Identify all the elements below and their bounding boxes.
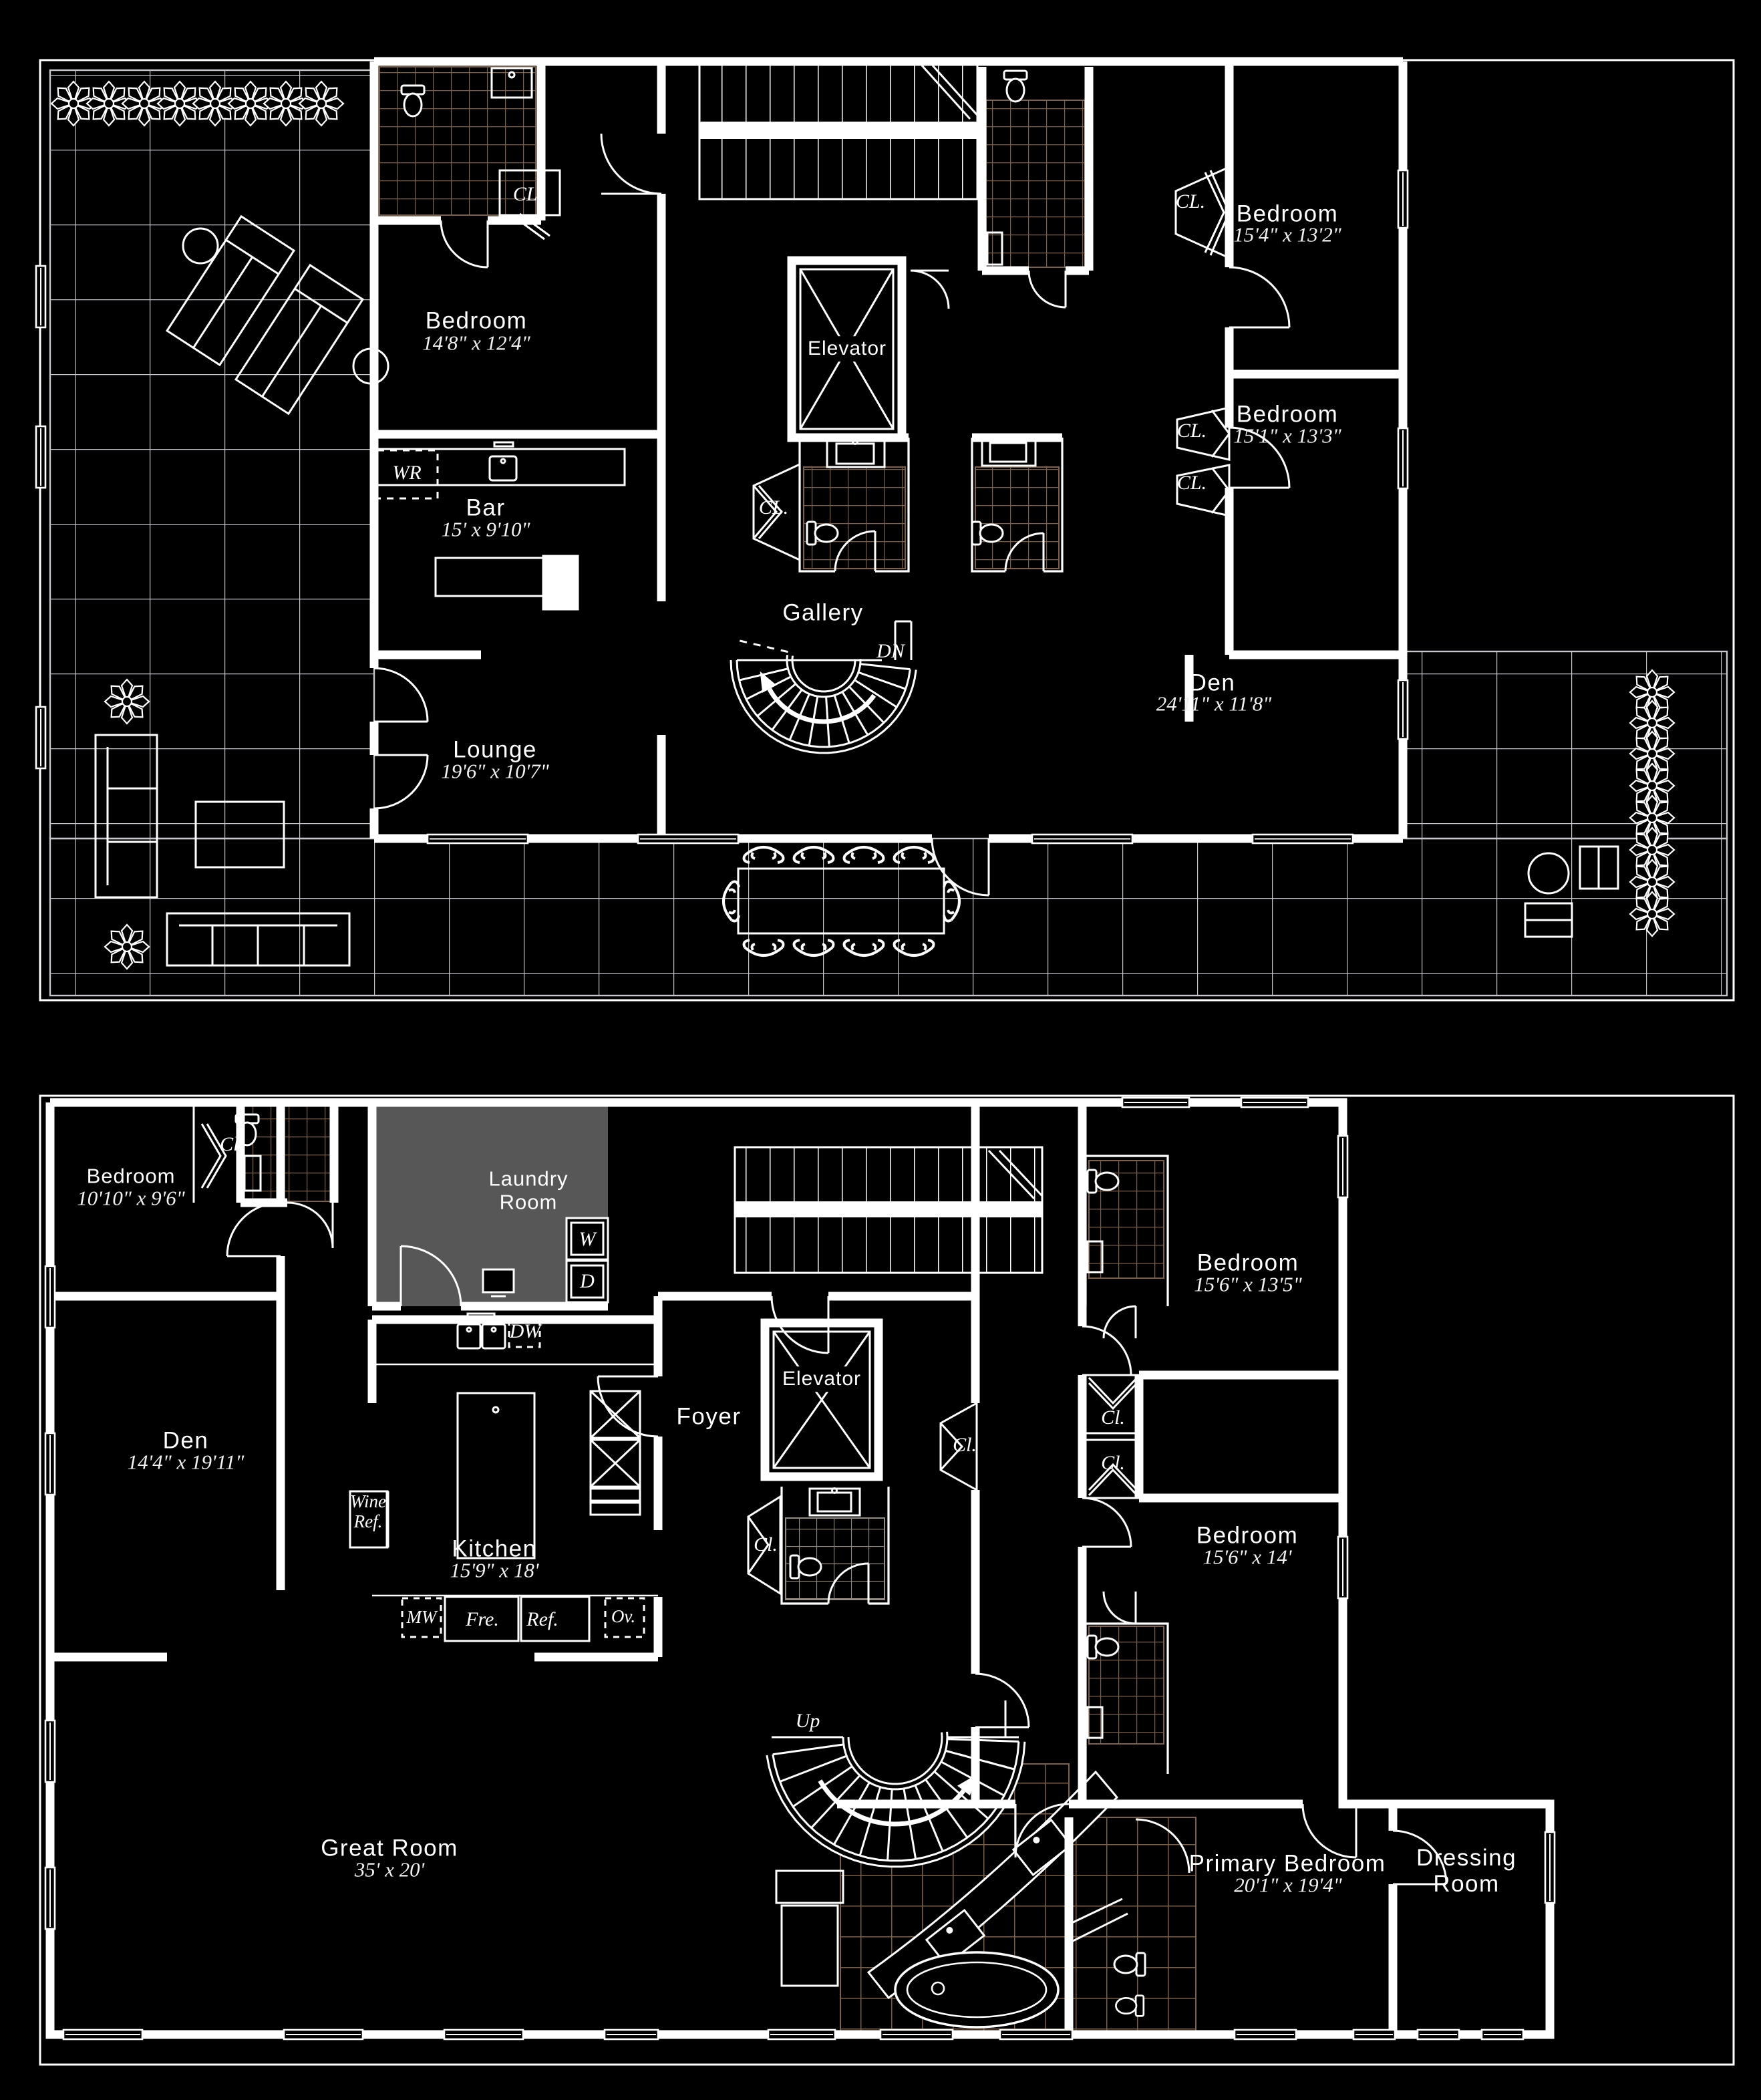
label-dishwasher: DW: [510, 1320, 541, 1343]
label-upper-bedroom-nw: Bedroom: [426, 307, 528, 333]
label-closet: CL.: [1176, 190, 1205, 213]
label-primary-bedroom-dims: 20'1" x 19'4": [1234, 1874, 1342, 1898]
upper-straight-stairs: [699, 63, 981, 199]
floor-plan-graphics: [0, 0, 1761, 2100]
label-dryer: D: [580, 1270, 595, 1293]
label-upper-elevator: Elevator: [802, 336, 892, 361]
label-freezer: Fre.: [466, 1608, 499, 1631]
label-closet: CL.: [759, 496, 788, 519]
floor-plan-page: Bedroom 14'8" x 12'4" CL. CL. CL. CL. CL…: [0, 0, 1761, 2100]
label-closet: Cl.: [1101, 1452, 1125, 1475]
label-lower-den-dims: 14'4" x 19'11": [128, 1451, 245, 1475]
label-lower-bedroom-ne-dims: 15'6" x 13'5": [1194, 1273, 1302, 1297]
label-closet: Cl.: [953, 1434, 977, 1457]
label-closet: CL.: [513, 183, 542, 206]
great-room-fixtures: [776, 1871, 843, 1986]
lower-straight-stairs: [735, 1147, 1042, 1273]
label-closet: CL.: [1177, 420, 1207, 442]
label-kitchen-dims: 15'9" x 18': [450, 1559, 538, 1583]
kitchen-fixtures: [350, 1314, 658, 1641]
label-washer: W: [579, 1228, 596, 1251]
label-wine-fridge: Wine Ref.: [339, 1491, 397, 1531]
label-closet: Cl.: [220, 1133, 244, 1156]
tv-icon: [483, 1269, 514, 1292]
upper-floor-plan: [40, 60, 1734, 1000]
lower-elevator: [765, 1323, 878, 1477]
label-closet: Cl.: [754, 1533, 778, 1556]
label-lower-bedroom-nw: Bedroom: [87, 1165, 176, 1189]
label-water-room: WR: [392, 462, 421, 484]
label-dressing-room: Dressing Room: [1406, 1845, 1527, 1897]
label-lounge-dims: 19'6" x 10'7": [441, 760, 549, 784]
label-upper-bedroom-nw-dims: 14'8" x 12'4": [422, 332, 530, 355]
label-fridge: Ref.: [526, 1608, 558, 1631]
label-upper-bedroom-e-dims: 15'1" x 13'3": [1233, 425, 1341, 448]
label-stair-up: Up: [796, 1710, 820, 1733]
label-closet: Cl.: [1101, 1406, 1125, 1429]
label-closet: CL.: [1177, 472, 1207, 494]
label-foyer: Foyer: [677, 1403, 742, 1429]
label-oven: Ov.: [611, 1606, 635, 1626]
label-laundry: Laundry Room: [475, 1167, 582, 1213]
label-great-room-dims: 35' x 20': [355, 1859, 425, 1882]
label-lower-elevator: Elevator: [777, 1366, 866, 1392]
lower-floor-plan: [40, 1096, 1734, 2065]
label-stair-down: DN: [876, 640, 905, 663]
label-upper-bedroom-ne-dims: 15'4" x 13'2": [1233, 224, 1341, 247]
label-gallery: Gallery: [782, 599, 863, 625]
label-microwave: MW: [407, 1607, 437, 1627]
label-lower-bedroom-nw-dims: 10'10" x 9'6": [77, 1187, 185, 1211]
label-lower-bedroom-e-dims: 15'6" x 14': [1203, 1546, 1291, 1569]
label-upper-den-dims: 24'11" x 11'8": [1156, 693, 1271, 716]
label-bar-dims: 15' x 9'10": [441, 518, 530, 542]
